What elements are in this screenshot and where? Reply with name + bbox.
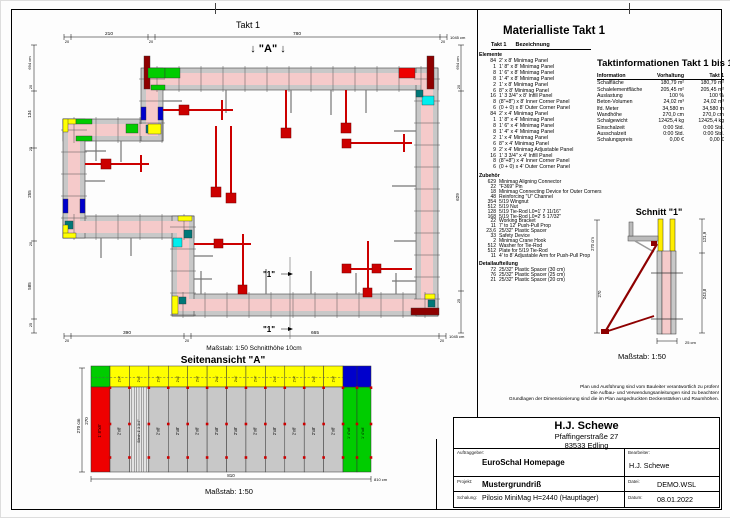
tie-dot: [322, 386, 325, 389]
panel-label: 2'x8': [233, 427, 238, 436]
panel-label: 2'x4': [273, 375, 277, 382]
panel-label: 2'x4': [312, 375, 316, 382]
dim-total-label: 694 cm: [27, 56, 32, 70]
panel-label: Blech 1' 3 3/4": [137, 419, 141, 443]
tie-dot: [128, 386, 131, 389]
tie-dot: [206, 456, 209, 459]
working-bracket: [628, 236, 658, 241]
material-list-title: Materialliste Takt 1: [503, 25, 597, 37]
tie-dot: [225, 386, 228, 389]
corner-panel: [63, 119, 68, 132]
ti-col-vorhaltung: Vorhaltung: [648, 73, 684, 79]
panel-label: 2'x8': [330, 427, 335, 436]
tie-dot: [109, 456, 112, 459]
tie-dot: [370, 423, 373, 426]
col-bezeichnung: Bezeichnung: [516, 42, 550, 48]
takt-info-title: Taktinformationen Takt 1 bis 1: [597, 58, 724, 69]
material-group: 629Minimag Aligning Connector22"F369" Pi…: [479, 180, 597, 259]
stop-end-bulkhead: [427, 56, 434, 89]
prop-foot: [363, 288, 372, 297]
corner-panel: [172, 296, 178, 314]
tie-dot: [322, 456, 325, 459]
side-view-drawing: 1' 8"x8'2'x8'2'x4'Blech 1' 3 3/4"2'x4'2'…: [71, 353, 391, 498]
dim-label: 243,8: [702, 288, 707, 299]
takt-info-body: Schalfläche180,79 m²180,79 m²Schalelemen…: [597, 80, 724, 143]
panel-label: 2'x4': [176, 375, 180, 382]
tie-dot: [283, 386, 286, 389]
tie-dot: [148, 386, 151, 389]
section-drawing: Schnitt "1" 270 cm 270 121,9 243,8 25 cm…: [587, 205, 727, 365]
material-group: 7225/32" Plastic Spacer (30 cm)7625/32" …: [479, 268, 597, 283]
panel-label: 2'x8': [175, 427, 180, 436]
dim-label: 20: [185, 339, 189, 343]
panel-label: 2'x8': [194, 427, 199, 436]
tie-dot: [303, 456, 306, 459]
company-name: H.J. Schewe: [454, 420, 719, 432]
corner-panel: [141, 107, 146, 120]
dim-label: 25: [29, 323, 33, 327]
dim-total-label: 694 cm: [455, 56, 460, 70]
auftraggeber-value: EuroSchal Homepage: [482, 458, 565, 467]
tie-dot: [356, 423, 359, 426]
dim-label: 20: [440, 339, 444, 343]
tie-dot: [283, 423, 286, 426]
sheet-divider-bottom: [436, 439, 437, 509]
dim-label: 20: [29, 85, 33, 89]
corner-panel: [76, 119, 92, 124]
material-name: (0 + 0) x 4' Outer Corner Panel: [499, 165, 570, 171]
tie-dot: [303, 386, 306, 389]
prop-foot: [342, 264, 351, 273]
corner-panel: [126, 124, 138, 133]
tie-dot: [264, 456, 267, 459]
panel-label: 2'x4': [118, 375, 122, 382]
push-pull-prop: [605, 244, 657, 332]
panel-label: 2'x8': [291, 427, 296, 436]
corner-panel: [416, 90, 423, 97]
datum-label: Datum:: [628, 495, 643, 500]
projekt-label: Projekt:: [457, 479, 472, 484]
prop-foot: [238, 285, 247, 294]
tie-dot: [225, 423, 228, 426]
dim-label: 20: [65, 339, 69, 343]
material-row: 2125/32" Plastic Spacer (20 cm): [479, 278, 597, 283]
panel-label: 1' 4"x8': [347, 427, 351, 439]
dim-label: 255: [27, 190, 32, 198]
title-block: H.J. Schewe Pfaffingerstraße 27 83533 Ed…: [453, 417, 720, 508]
tie-dot: [225, 456, 228, 459]
wall-core: [177, 299, 433, 311]
tie-dot: [245, 423, 248, 426]
title-block-row-project: Projekt: Mustergrundriß Datei: DEMO.WSL: [454, 476, 719, 492]
takt-info-header-row: Information Vorhaltung Takt 1: [597, 73, 724, 80]
tie-dot: [167, 423, 170, 426]
projekt-value: Mustergrundriß: [482, 480, 541, 489]
datei-label: Datei:: [628, 479, 640, 484]
dim-label: 585: [27, 282, 32, 290]
plan-view-drawing: Takt 1 ↓ "A" ↓ 20 210 20 780 20 1045 cm …: [21, 17, 473, 357]
schalung-label: Schalung:: [457, 495, 477, 500]
schalung-value: Pilosio MiniMag H=2440 (Hauptlager): [482, 495, 599, 502]
tie-dot: [128, 423, 131, 426]
panel-label: 1' 8"x8': [97, 424, 102, 438]
side-view-title: Seitenansicht "A": [181, 355, 266, 366]
tie-dot: [109, 423, 112, 426]
panel-label: 1' 4"x8': [361, 427, 365, 439]
material-name: 4' to 8' Adjustable Arm for Push-Pull Pr…: [499, 254, 590, 259]
corner-panel: [63, 233, 76, 238]
ti-value: 0,00 €: [684, 137, 724, 143]
tie-dot: [109, 386, 112, 389]
corner-panel: [151, 85, 165, 90]
fold-mark-top-right: [629, 3, 630, 14]
tie-dot: [245, 456, 248, 459]
panel-label: 2'x8': [117, 427, 122, 436]
dim-label: 25: [457, 299, 461, 303]
corner-panel: [63, 199, 68, 213]
corner-panel: [179, 297, 186, 304]
material-row: 114' to 8' Adjustable Arm for Push-Pull …: [479, 254, 597, 259]
side-view-scale: Maßstab: 1:50: [205, 487, 253, 496]
prop-foot: [101, 159, 111, 169]
stop-end-bulkhead: [411, 308, 439, 315]
datum-value: 08.01.2022: [657, 495, 693, 504]
datei-value: DEMO.WSL: [657, 480, 696, 489]
corner-panel: [184, 230, 192, 238]
tie-dot: [148, 423, 151, 426]
tie-dot: [356, 386, 359, 389]
cut-marker-1: "1": [263, 270, 275, 279]
dim-label: 20: [441, 40, 445, 44]
dim-label: 134: [27, 110, 32, 118]
dim-label: 25 cm: [685, 340, 697, 345]
tie-dot: [128, 456, 131, 459]
panel-label: 2'x4': [331, 375, 335, 382]
tie-dot: [370, 386, 373, 389]
corner-panel: [158, 107, 163, 120]
material-row: 6(0 + 0) x 4' Outer Corner Panel: [479, 165, 597, 171]
dim-label: 665: [311, 330, 319, 336]
material-group-label: Detailaufteilung: [479, 261, 597, 267]
material-name: 25/32" Plastic Spacer (20 cm): [499, 278, 565, 283]
company-address1: Pfaffingerstraße 27: [454, 432, 719, 441]
takt-info: Taktinformationen Takt 1 bis 1 Informati…: [597, 58, 724, 144]
plan-walls: [61, 56, 440, 318]
panel-label: 2'x4': [157, 375, 161, 382]
dim-label: 629: [455, 193, 460, 201]
dim-label: 270: [597, 290, 602, 298]
section-labels: Schnitt "1" 270 cm 270 121,9 243,8 25 cm…: [590, 207, 707, 361]
tie-dot: [186, 423, 189, 426]
panel-label: 2'x4': [215, 375, 219, 382]
dim-label: 25: [29, 147, 33, 151]
dim-label: 20: [149, 40, 153, 44]
corner-panel: [148, 124, 161, 134]
title-block-row-client: Auftraggeber: EuroSchal Homepage Bearbei…: [454, 449, 719, 476]
title-block-row-formwork: Schalung: Pilosio MiniMag H=2440 (Hauptl…: [454, 491, 719, 508]
sheet-divider-vertical: [477, 9, 478, 417]
fold-mark-top-left: [215, 3, 216, 14]
title-block-header: H.J. Schewe Pfaffingerstraße 27 83533 Ed…: [454, 418, 719, 449]
dim-label: 810: [227, 473, 235, 478]
prop-foot: [179, 105, 189, 115]
side-view-panels: 1' 8"x8'2'x8'2'x4'Blech 1' 3 3/4"2'x4'2'…: [91, 366, 372, 472]
corner-panel: [76, 136, 92, 141]
prop-foot: [211, 187, 221, 197]
corner-panel: [178, 216, 192, 221]
col-takt: Takt 1: [491, 42, 507, 48]
section-formwork-right: [671, 251, 676, 334]
plan-sheet: Takt 1 ↓ "A" ↓ 20 210 20 780 20 1045 cm …: [0, 0, 730, 518]
tie-dot: [148, 456, 151, 459]
plan-title: Takt 1: [236, 20, 260, 30]
ti-value: 0,00 €: [648, 137, 684, 143]
material-list-body: Elemente842' x 8' Minimag Panel11' 8" x …: [479, 52, 597, 282]
dim-total-label: 1045 cm: [449, 334, 465, 339]
panel-label: 2'x8': [214, 427, 219, 436]
panel-label: 2'x4': [195, 375, 199, 382]
corner-panel: [428, 300, 435, 307]
disclaimer-text: Plan und Ausführung sind vom Bauleiter v…: [431, 385, 719, 402]
ti-col-information: Information: [597, 73, 648, 79]
corner-panel: [148, 68, 165, 78]
ti-col-takt1: Takt 1: [684, 73, 724, 79]
material-qty: 21: [479, 278, 496, 283]
dim-label: 210: [105, 31, 113, 37]
tie-dot: [370, 456, 373, 459]
material-list-header: Takt 1Bezeichnung: [491, 42, 591, 50]
material-qty: 6: [479, 165, 496, 171]
tie-dot: [283, 456, 286, 459]
takt-info-row: Schalungspreis0,00 €0,00 €: [597, 137, 724, 143]
wall-core: [146, 73, 433, 85]
material-list: Materialliste Takt 1 Takt 1Bezeichnung E…: [479, 25, 597, 282]
section-scale: Maßstab: 1:50: [618, 352, 666, 361]
dim-label: 20: [29, 242, 33, 246]
corner-panel: [422, 96, 434, 105]
tie-dot: [245, 386, 248, 389]
tie-dot: [322, 423, 325, 426]
material-group: 842' x 8' Minimag Panel11' 8" x 8' Minim…: [479, 59, 597, 171]
section-title: Schnitt "1": [636, 207, 683, 217]
plan-scale-note: Maßstab: 1:50 Schnitthöhe 10cm: [206, 345, 301, 352]
tie-dot: [342, 423, 345, 426]
tie-dot: [206, 423, 209, 426]
panel-label: 2'x4': [137, 375, 141, 382]
section-formwork-left: [657, 251, 662, 334]
prop-foot: [281, 128, 291, 138]
dim-total-label: 810 cm: [374, 477, 388, 482]
corner-panel: [399, 68, 415, 78]
ti-label: Schalungspreis: [597, 137, 648, 143]
tie-dot: [264, 386, 267, 389]
section-a-marker: ↓ "A" ↓: [250, 43, 286, 55]
tie-dot: [186, 386, 189, 389]
dim-label: 390: [123, 330, 131, 336]
disclaimer-line: Grundlagen der Dimensionierung sind die …: [431, 397, 719, 403]
prop-foot: [226, 193, 236, 203]
tie-dot: [303, 423, 306, 426]
wall-core: [421, 73, 433, 311]
panel-label: 2'x8': [253, 427, 258, 436]
dim-total-label: 270 cm: [76, 418, 81, 433]
panel-label: 2'x4': [254, 375, 258, 382]
section-wall-core: [662, 251, 671, 334]
section-shapes: [601, 219, 683, 334]
tie-dot: [167, 456, 170, 459]
corner-panel: [425, 294, 435, 299]
dim-label: 780: [293, 31, 301, 37]
dim-label: 270: [84, 417, 89, 425]
bearbeiter-label: Bearbeiter:: [628, 450, 650, 455]
panel-label: 2'x8': [272, 427, 277, 436]
tie-dot: [264, 423, 267, 426]
corner-panel: [173, 238, 182, 247]
tie-dot: [206, 386, 209, 389]
dim-label: 20: [65, 40, 69, 44]
corner-panel: [91, 366, 110, 387]
tie-dot: [342, 386, 345, 389]
cut-marker-1: "1": [263, 325, 275, 334]
tie-dot: [356, 456, 359, 459]
panel-label: 2'x4': [234, 375, 238, 382]
prop-foot: [214, 239, 223, 248]
panel-label: 2'x8': [156, 427, 161, 436]
tie-dot: [167, 386, 170, 389]
tie-dot: [186, 456, 189, 459]
bearbeiter-value: H.J. Schewe: [629, 461, 669, 470]
dim-total-label: 1045 cm: [450, 35, 466, 40]
prop-foot: [372, 264, 381, 273]
auftraggeber-label: Auftraggeber:: [457, 450, 484, 455]
corner-panel: [165, 68, 180, 78]
dim-label: 20: [457, 85, 461, 89]
corner-panel: [80, 199, 85, 213]
material-qty: 11: [479, 254, 496, 259]
dim-label: 121,9: [702, 231, 707, 242]
panel-label: 2'x8': [311, 427, 316, 436]
prop-foot: [341, 123, 351, 133]
tie-dot: [342, 456, 345, 459]
prop-foot: [342, 139, 351, 148]
panel-label: 2'x4': [292, 375, 296, 382]
